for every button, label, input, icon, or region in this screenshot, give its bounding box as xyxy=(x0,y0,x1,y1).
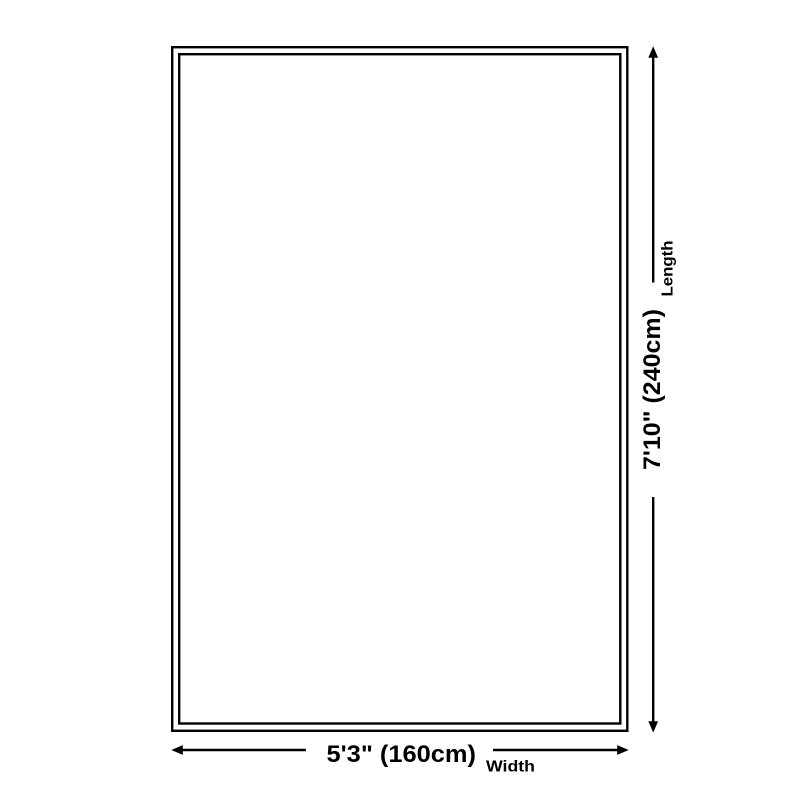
svg-text:Length: Length xyxy=(659,241,676,297)
svg-text:Width: Width xyxy=(486,758,535,775)
svg-text:7'10" (240cm): 7'10" (240cm) xyxy=(639,309,666,470)
svg-text:5'3" (160cm): 5'3" (160cm) xyxy=(327,741,477,768)
